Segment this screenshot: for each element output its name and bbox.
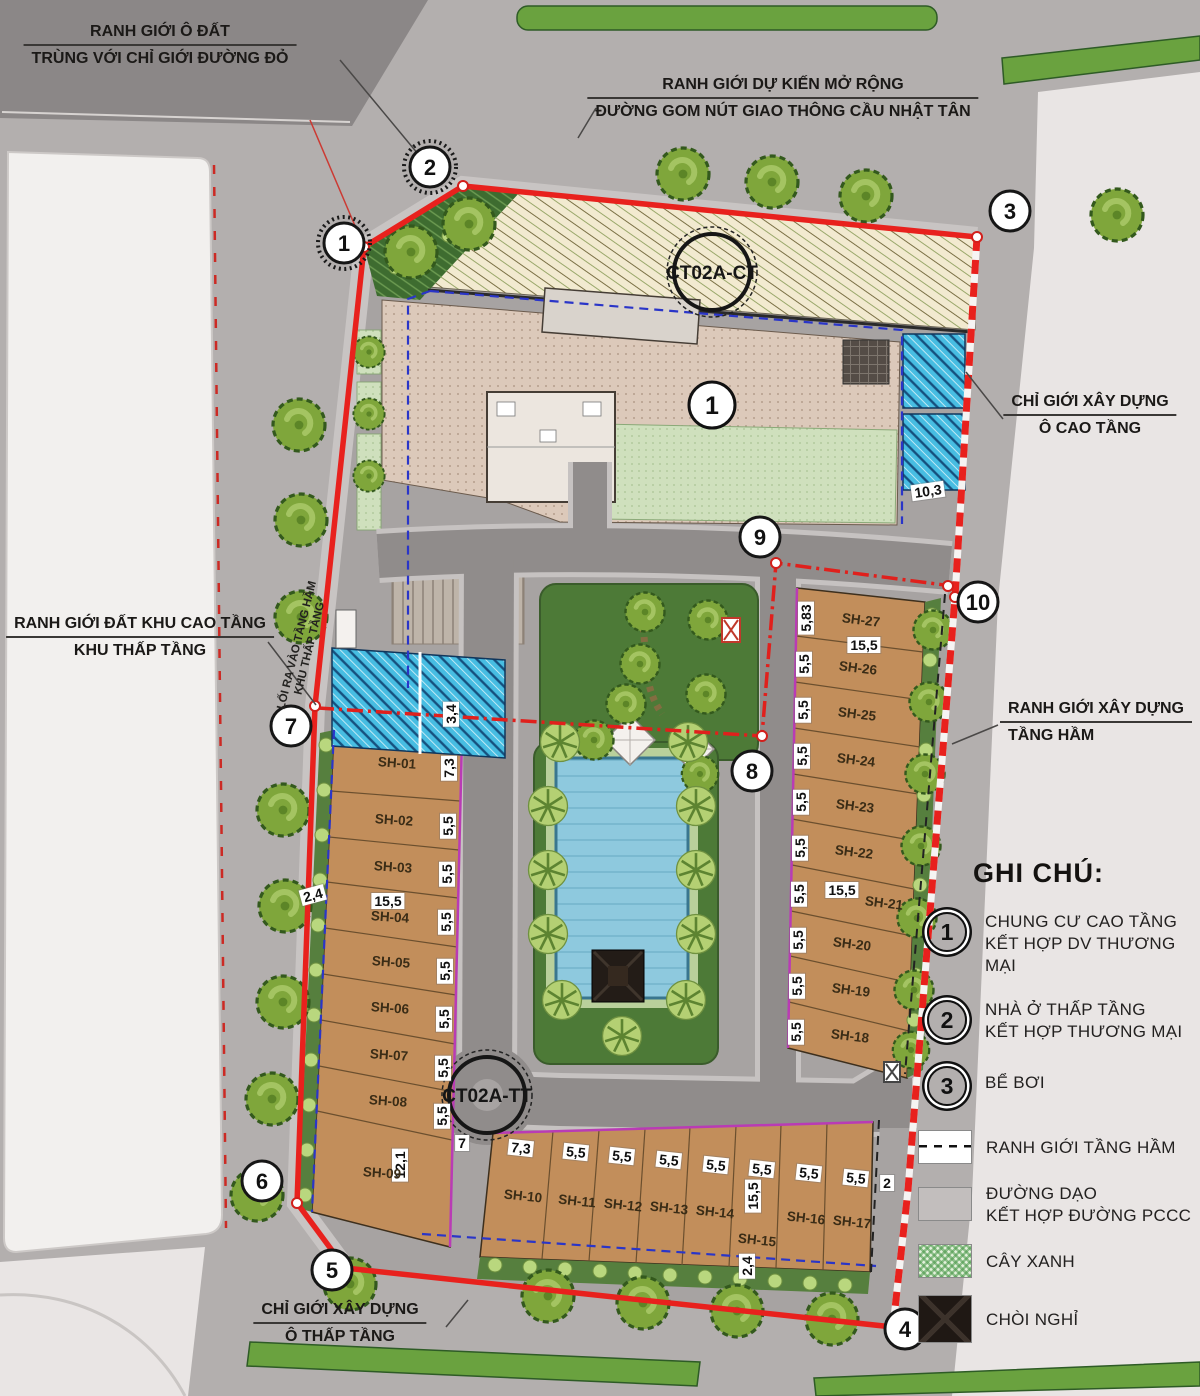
dim-label: 5,5 (439, 861, 455, 886)
dark-swatch (918, 1295, 972, 1343)
dim-label: 5,5 (842, 1169, 869, 1188)
dim-label: 5,5 (793, 789, 809, 814)
svg-text:9: 9 (754, 525, 766, 550)
dim-label: 3,4 (443, 701, 459, 726)
svg-text:10: 10 (966, 590, 990, 615)
callout-line: Ô THẤP TẦNG (253, 1324, 426, 1346)
svg-text:4: 4 (899, 1317, 912, 1342)
callout-line: TRÙNG VỚI CHỈ GIỚI ĐƯỜNG ĐỎ (24, 46, 297, 68)
green-swatch (918, 1244, 972, 1278)
dim-label: 15,5 (825, 882, 858, 898)
legend: GHI CHÚ: 1 CHUNG CƯ CAO TẦNG KẾT HỢP DV … (915, 858, 1200, 1343)
dim-label: 5,5 (655, 1151, 682, 1170)
boundary-point-3: 3 (990, 191, 1030, 231)
callout-line: CHỈ GIỚI XÂY DỰNG (1003, 392, 1176, 416)
legend-title: GHI CHÚ: (973, 858, 1200, 889)
svg-text:8: 8 (746, 759, 758, 784)
dim-label: 5,5 (789, 973, 805, 998)
dim-label: 5,5 (702, 1156, 729, 1175)
legend-line: KẾT HỢP THƯƠNG MẠI (985, 1021, 1182, 1043)
dim-label: 15,5 (745, 1179, 761, 1212)
legend-line: KẾT HỢP DV THƯƠNG MẠI (985, 933, 1200, 977)
callout-line: KHU THẤP TẦNG (6, 638, 274, 660)
site-plan: CT02A-CT CT02A-TT 1 2 3 4 5 6 7 8 9 10 1 (0, 0, 1200, 1396)
callout-line: RANH GIỚI ĐẤT KHU CAO TẦNG (6, 614, 274, 638)
lot-label: SH-07 (369, 1046, 408, 1064)
adjacent-lot (4, 152, 226, 1252)
dim-label: 15,5 (371, 893, 404, 909)
svg-text:1: 1 (705, 392, 719, 420)
legend-number-1: 1 (927, 912, 967, 952)
gazebo (592, 950, 644, 1002)
lot-label: SH-01 (377, 754, 416, 772)
legend-number-2: 2 (927, 1000, 967, 1040)
legend-swatch-text: ĐƯỜNG DẠO KẾT HỢP ĐƯỜNG PCCC (986, 1181, 1191, 1227)
boundary-point-8: 8 (732, 751, 772, 791)
basement-ramp (336, 610, 356, 648)
legend-number-3: 3 (927, 1066, 967, 1106)
callout-line: Ô CAO TẦNG (1003, 416, 1176, 438)
svg-text:5: 5 (326, 1258, 338, 1283)
dim-label: 5,5 (796, 651, 812, 676)
lot-label: SH-02 (374, 811, 413, 829)
lot-label: SH-04 (370, 908, 409, 926)
dim-label: 5,5 (795, 1164, 822, 1183)
callout-land-boundary: RANH GIỚI ĐẤT KHU CAO TẦNG KHU THẤP TẦNG (6, 614, 274, 660)
dim-label: 2 (880, 1175, 894, 1191)
svg-text:7: 7 (285, 714, 297, 739)
boundary-point-9: 9 (740, 517, 780, 557)
dim-label: 5,5 (791, 881, 807, 906)
boundary-point-6: 6 (242, 1161, 282, 1201)
legend-line: ĐƯỜNG DẠO (986, 1183, 1191, 1205)
lot-label: SH-03 (373, 858, 412, 876)
legend-item-text: BỂ BƠI (985, 1063, 1045, 1094)
dim-label: 5,5 (436, 1006, 452, 1031)
boundary-point-5: 5 (312, 1250, 352, 1290)
lot-label: SH-06 (370, 999, 409, 1017)
dim-label: 5,5 (434, 1103, 450, 1128)
dim-label: 5,5 (440, 813, 456, 838)
dim-label: 5,5 (608, 1147, 635, 1166)
svg-text:3: 3 (1004, 199, 1016, 224)
legend-swatch-greenery: CÂY XANH (918, 1244, 1200, 1278)
dim-label: 5,5 (792, 835, 808, 860)
callout-line: CHỈ GIỚI XÂY DỰNG (253, 1300, 426, 1324)
boundary-point-7: 7 (271, 706, 311, 746)
dim-label: 5,5 (562, 1143, 589, 1162)
callout-expansion-boundary: RANH GIỚI DỰ KIẾN MỞ RỘNG ĐƯỜNG GOM NÚT … (587, 75, 978, 121)
dim-label: 5,5 (438, 909, 454, 934)
dim-label: 5,5 (794, 743, 810, 768)
callout-highrise-line: CHỈ GIỚI XÂY DỰNG Ô CAO TẦNG (1003, 392, 1176, 438)
svg-text:2: 2 (424, 155, 436, 180)
dim-label: 7,3 (441, 755, 457, 780)
callout-line: RANH GIỚI XÂY DỰNG (1000, 699, 1192, 723)
lot-label: SH-05 (371, 953, 410, 971)
legend-line: KẾT HỢP ĐƯỜNG PCCC (986, 1205, 1191, 1227)
legend-swatch-gazebo: CHÒI NGHỈ (918, 1295, 1200, 1343)
legend-line: NHÀ Ở THẤP TẦNG (985, 999, 1182, 1021)
legend-swatch-text: CHÒI NGHỈ (986, 1307, 1078, 1331)
callout-line: RANH GIỚI DỰ KIẾN MỞ RỘNG (587, 75, 978, 99)
legend-item-text: NHÀ Ở THẤP TẦNG KẾT HỢP THƯƠNG MẠI (985, 997, 1182, 1043)
legend-swatch-text: CÂY XANH (986, 1249, 1075, 1273)
legend-swatch-walkway: ĐƯỜNG DẠO KẾT HỢP ĐƯỜNG PCCC (918, 1181, 1200, 1227)
dim-label: 5,5 (437, 958, 453, 983)
dim-label: 15,5 (847, 637, 880, 653)
callout-lowrise-line: CHỈ GIỚI XÂY DỰNG Ô THẤP TẦNG (253, 1300, 426, 1346)
dim-label: 5,5 (748, 1160, 775, 1179)
legend-item-text: CHUNG CƯ CAO TẦNG KẾT HỢP DV THƯƠNG MẠI (985, 909, 1200, 977)
dim-label: 5,5 (795, 697, 811, 722)
callout-line: ĐƯỜNG GOM NÚT GIAO THÔNG CẦU NHẬT TÂN (587, 99, 978, 121)
lot-label: SH-09 (362, 1164, 401, 1182)
svg-text:1: 1 (338, 231, 350, 256)
callout-plot-boundary: RANH GIỚI Ô ĐẤT TRÙNG VỚI CHỈ GIỚI ĐƯỜNG… (24, 22, 297, 68)
legend-item-highrise: 1 CHUNG CƯ CAO TẦNG KẾT HỢP DV THƯƠNG MẠ… (925, 909, 1200, 977)
dim-label: 2,4 (739, 1253, 755, 1278)
callout-basement-boundary: RANH GIỚI XÂY DỰNG TẦNG HẦM (1000, 699, 1192, 745)
dim-label: 7,3 (507, 1139, 534, 1158)
dim-label: 7 (455, 1135, 469, 1151)
legend-swatch-basement: RANH GIỚI TẦNG HẦM (918, 1130, 1200, 1164)
dim-label: 5,5 (435, 1055, 451, 1080)
callout-line: RANH GIỚI Ô ĐẤT (24, 22, 297, 46)
legend-line: BỂ BƠI (985, 1072, 1045, 1094)
dim-label: 5,5 (788, 1019, 804, 1044)
legend-item-pool: 3 BỂ BƠI (925, 1063, 1200, 1106)
dim-label: 5,83 (798, 601, 814, 634)
dashed-line-swatch (918, 1130, 972, 1164)
svg-text:CT02A-CT: CT02A-CT (666, 263, 758, 284)
highrise-marker: 1 (689, 382, 735, 428)
legend-item-lowrise: 2 NHÀ Ở THẤP TẦNG KẾT HỢP THƯƠNG MẠI (925, 997, 1200, 1043)
gray-swatch (918, 1187, 972, 1221)
lot-label: SH-08 (368, 1092, 407, 1110)
legend-line: CHUNG CƯ CAO TẦNG (985, 911, 1200, 933)
callout-line: TẦNG HẦM (1000, 723, 1192, 745)
legend-swatch-text: RANH GIỚI TẦNG HẦM (986, 1135, 1176, 1159)
boundary-point-10: 10 (958, 582, 998, 622)
svg-text:CT02A-TT: CT02A-TT (442, 1086, 532, 1107)
svg-text:6: 6 (256, 1169, 268, 1194)
dim-label: 5,5 (790, 927, 806, 952)
